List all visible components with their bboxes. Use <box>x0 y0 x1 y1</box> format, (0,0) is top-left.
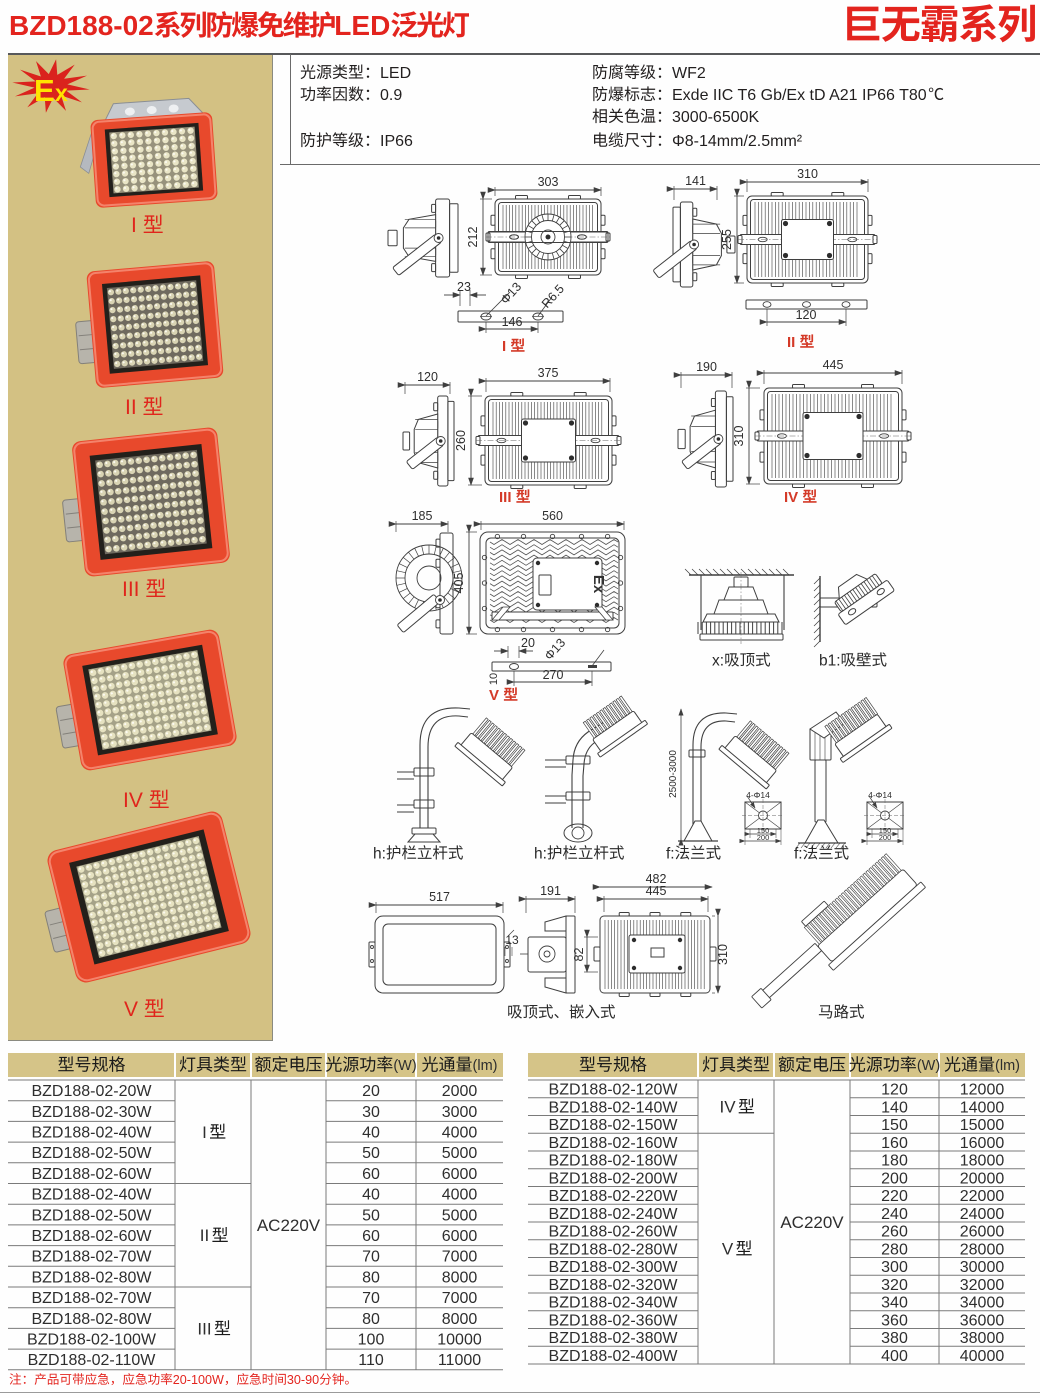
svg-text:Ex: Ex <box>590 575 607 594</box>
svg-text:120: 120 <box>417 370 438 384</box>
svg-text:Φ13: Φ13 <box>542 636 568 663</box>
svg-text:BZD188-02-40W: BZD188-02-40W <box>31 1125 152 1142</box>
svg-text:BZD188-02-220W: BZD188-02-220W <box>549 1188 679 1205</box>
svg-text:IV: IV <box>784 489 798 506</box>
svg-text:80: 80 <box>362 1269 380 1286</box>
svg-text:BZD188-02-380W: BZD188-02-380W <box>549 1330 679 1347</box>
svg-text:4-Φ14: 4-Φ14 <box>868 790 892 800</box>
svg-text:BZD188-02-80W: BZD188-02-80W <box>31 1269 152 1286</box>
svg-text:375: 375 <box>538 366 559 380</box>
svg-text:10: 10 <box>488 673 500 685</box>
svg-text:BZD188-02-400W: BZD188-02-400W <box>549 1348 679 1365</box>
svg-text:2500-3000: 2500-3000 <box>668 750 679 798</box>
svg-text:BZD188-02-70W: BZD188-02-70W <box>31 1290 152 1307</box>
svg-text:220: 220 <box>881 1188 908 1205</box>
svg-text:4-Φ14: 4-Φ14 <box>746 790 770 800</box>
svg-text:30: 30 <box>362 1104 380 1121</box>
svg-text:V: V <box>722 1240 734 1259</box>
svg-text:445: 445 <box>646 884 667 898</box>
svg-text:300: 300 <box>881 1259 908 1276</box>
svg-text:32000: 32000 <box>960 1277 1005 1294</box>
svg-text:26000: 26000 <box>960 1224 1005 1241</box>
svg-text:BZD188-02-300W: BZD188-02-300W <box>549 1259 679 1276</box>
svg-text:III: III <box>197 1319 211 1338</box>
svg-text:340: 340 <box>881 1295 908 1312</box>
svg-text:6000: 6000 <box>442 1228 478 1245</box>
svg-text:(W): (W) <box>393 1058 416 1074</box>
svg-text:BZD188-02-70W: BZD188-02-70W <box>31 1249 152 1266</box>
svg-text:23: 23 <box>457 280 471 294</box>
svg-text:8000: 8000 <box>442 1311 478 1328</box>
svg-text:V: V <box>489 687 499 704</box>
svg-text:40000: 40000 <box>960 1348 1005 1365</box>
svg-text:40: 40 <box>362 1125 380 1142</box>
svg-text:R6.5: R6.5 <box>539 282 567 311</box>
svg-text:50: 50 <box>362 1145 380 1162</box>
svg-text:310: 310 <box>716 944 730 965</box>
svg-text:I: I <box>502 338 506 355</box>
svg-text:22000: 22000 <box>960 1188 1005 1205</box>
svg-text:16000: 16000 <box>960 1135 1005 1152</box>
svg-text:BZD188-02-200W: BZD188-02-200W <box>549 1170 679 1187</box>
svg-text:(lm): (lm) <box>473 1058 498 1074</box>
svg-text:120: 120 <box>881 1082 908 1099</box>
svg-text:150: 150 <box>881 1117 908 1134</box>
svg-text:146: 146 <box>502 315 523 329</box>
svg-text:BZD188-02-140W: BZD188-02-140W <box>549 1099 679 1116</box>
svg-text:140: 140 <box>881 1099 908 1116</box>
svg-text:f:: f: <box>666 845 675 862</box>
svg-text:f:: f: <box>794 845 803 862</box>
svg-text:100: 100 <box>358 1332 385 1349</box>
svg-text:24000: 24000 <box>960 1206 1005 1223</box>
svg-text:80: 80 <box>362 1311 380 1328</box>
svg-text:BZD188-02-50W: BZD188-02-50W <box>31 1207 152 1224</box>
svg-text:BZD188-02-110W: BZD188-02-110W <box>28 1352 157 1369</box>
svg-text:BZD188-02-40W: BZD188-02-40W <box>31 1187 152 1204</box>
svg-text:30-90: 30-90 <box>287 1373 319 1387</box>
svg-text:7000: 7000 <box>442 1249 478 1266</box>
svg-text:BZD188-02-240W: BZD188-02-240W <box>549 1206 679 1223</box>
svg-text:20: 20 <box>362 1083 380 1100</box>
svg-text:II: II <box>787 334 795 351</box>
svg-text:BZD188-02-150W: BZD188-02-150W <box>549 1117 679 1134</box>
svg-text:303: 303 <box>538 175 559 189</box>
svg-text:60: 60 <box>362 1166 380 1183</box>
svg-text:5000: 5000 <box>442 1207 478 1224</box>
svg-text:185: 185 <box>412 509 433 523</box>
svg-text:IV: IV <box>719 1098 736 1117</box>
svg-text:180: 180 <box>881 1153 908 1170</box>
svg-text:12000: 12000 <box>960 1082 1005 1099</box>
svg-text:x:: x: <box>712 652 724 669</box>
svg-text:190: 190 <box>696 360 717 374</box>
svg-text:50: 50 <box>362 1207 380 1224</box>
svg-text:360: 360 <box>881 1312 908 1329</box>
svg-text:380: 380 <box>881 1330 908 1347</box>
svg-text:310: 310 <box>732 426 746 447</box>
svg-text:28000: 28000 <box>960 1241 1005 1258</box>
svg-text:405: 405 <box>452 573 466 594</box>
svg-text:11000: 11000 <box>438 1352 481 1369</box>
svg-text:70: 70 <box>362 1290 380 1307</box>
svg-text:400: 400 <box>881 1348 908 1365</box>
svg-text:5000: 5000 <box>442 1145 478 1162</box>
svg-text:240: 240 <box>881 1206 908 1223</box>
svg-text:260: 260 <box>881 1224 908 1241</box>
svg-text:260: 260 <box>454 430 468 451</box>
svg-text:AC220V: AC220V <box>257 1216 321 1235</box>
svg-text:BZD188-02-320W: BZD188-02-320W <box>549 1277 679 1294</box>
svg-text:BZD188-02-60W: BZD188-02-60W <box>31 1228 152 1245</box>
svg-text:4000: 4000 <box>442 1125 478 1142</box>
svg-text:120: 120 <box>796 308 817 322</box>
svg-text:70: 70 <box>362 1249 380 1266</box>
svg-text:13: 13 <box>505 933 519 947</box>
svg-text:BZD188-02-30W: BZD188-02-30W <box>31 1104 152 1121</box>
svg-text:3000: 3000 <box>442 1104 478 1121</box>
svg-text:560: 560 <box>542 509 563 523</box>
svg-text:191: 191 <box>540 884 561 898</box>
svg-text:BZD188-02-80W: BZD188-02-80W <box>31 1311 152 1328</box>
svg-text:30000: 30000 <box>960 1259 1005 1276</box>
svg-text:BZD188-02-20W: BZD188-02-20W <box>31 1083 152 1100</box>
svg-text:200: 200 <box>879 833 892 842</box>
svg-text:h:: h: <box>534 845 547 862</box>
svg-text:6000: 6000 <box>442 1166 478 1183</box>
svg-text:BZD188-02-50W: BZD188-02-50W <box>31 1145 152 1162</box>
svg-text:20000: 20000 <box>960 1170 1005 1187</box>
svg-text:2000: 2000 <box>442 1083 478 1100</box>
svg-text:BZD188-02-360W: BZD188-02-360W <box>549 1312 679 1329</box>
svg-text:36000: 36000 <box>960 1312 1005 1329</box>
svg-text:h:: h: <box>373 845 386 862</box>
svg-text:II: II <box>200 1226 209 1245</box>
svg-text:15000: 15000 <box>960 1117 1005 1134</box>
svg-text:BZD188-02-60W: BZD188-02-60W <box>31 1166 152 1183</box>
svg-text:8000: 8000 <box>442 1269 478 1286</box>
svg-text:82: 82 <box>572 948 586 962</box>
svg-text:BZD188-02-340W: BZD188-02-340W <box>549 1295 679 1312</box>
svg-text:BZD188-02-120W: BZD188-02-120W <box>549 1082 679 1099</box>
svg-text:212: 212 <box>466 227 480 248</box>
svg-text:34000: 34000 <box>960 1295 1005 1312</box>
svg-text:200: 200 <box>757 833 770 842</box>
svg-text:14000: 14000 <box>960 1099 1005 1116</box>
svg-text:BZD188-02-180W: BZD188-02-180W <box>549 1153 679 1170</box>
svg-text:18000: 18000 <box>960 1153 1005 1170</box>
svg-text:AC220V: AC220V <box>780 1213 844 1232</box>
svg-text:BZD188-02-100W: BZD188-02-100W <box>27 1332 157 1349</box>
svg-text:20: 20 <box>521 636 535 650</box>
svg-text:BZD188-02-160W: BZD188-02-160W <box>549 1135 679 1152</box>
svg-text:40: 40 <box>362 1187 380 1204</box>
svg-text:Φ13: Φ13 <box>498 280 524 307</box>
svg-text:10000: 10000 <box>437 1332 482 1349</box>
svg-text:160: 160 <box>881 1135 908 1152</box>
svg-text:310: 310 <box>797 167 818 181</box>
svg-text:270: 270 <box>543 668 564 682</box>
svg-text:7000: 7000 <box>442 1290 478 1307</box>
svg-text:III: III <box>499 489 512 506</box>
svg-text:I: I <box>202 1123 207 1142</box>
svg-text:BZD188-02-260W: BZD188-02-260W <box>549 1224 679 1241</box>
svg-text:200: 200 <box>881 1170 908 1187</box>
svg-text:b1:: b1: <box>819 652 841 669</box>
svg-text:(W): (W) <box>917 1058 940 1074</box>
svg-text:BZD188-02-280W: BZD188-02-280W <box>549 1241 679 1258</box>
svg-text:60: 60 <box>362 1228 380 1245</box>
svg-text:38000: 38000 <box>960 1330 1005 1347</box>
svg-text:445: 445 <box>823 358 844 372</box>
svg-text:20-100W: 20-100W <box>173 1373 224 1387</box>
svg-text:517: 517 <box>429 890 450 904</box>
svg-text:280: 280 <box>881 1241 908 1258</box>
svg-text:141: 141 <box>685 174 706 188</box>
svg-text:4000: 4000 <box>442 1187 478 1204</box>
svg-text:(lm): (lm) <box>995 1058 1020 1074</box>
svg-text:110: 110 <box>358 1352 384 1369</box>
svg-text:320: 320 <box>881 1277 908 1294</box>
svg-text:255: 255 <box>720 229 734 250</box>
